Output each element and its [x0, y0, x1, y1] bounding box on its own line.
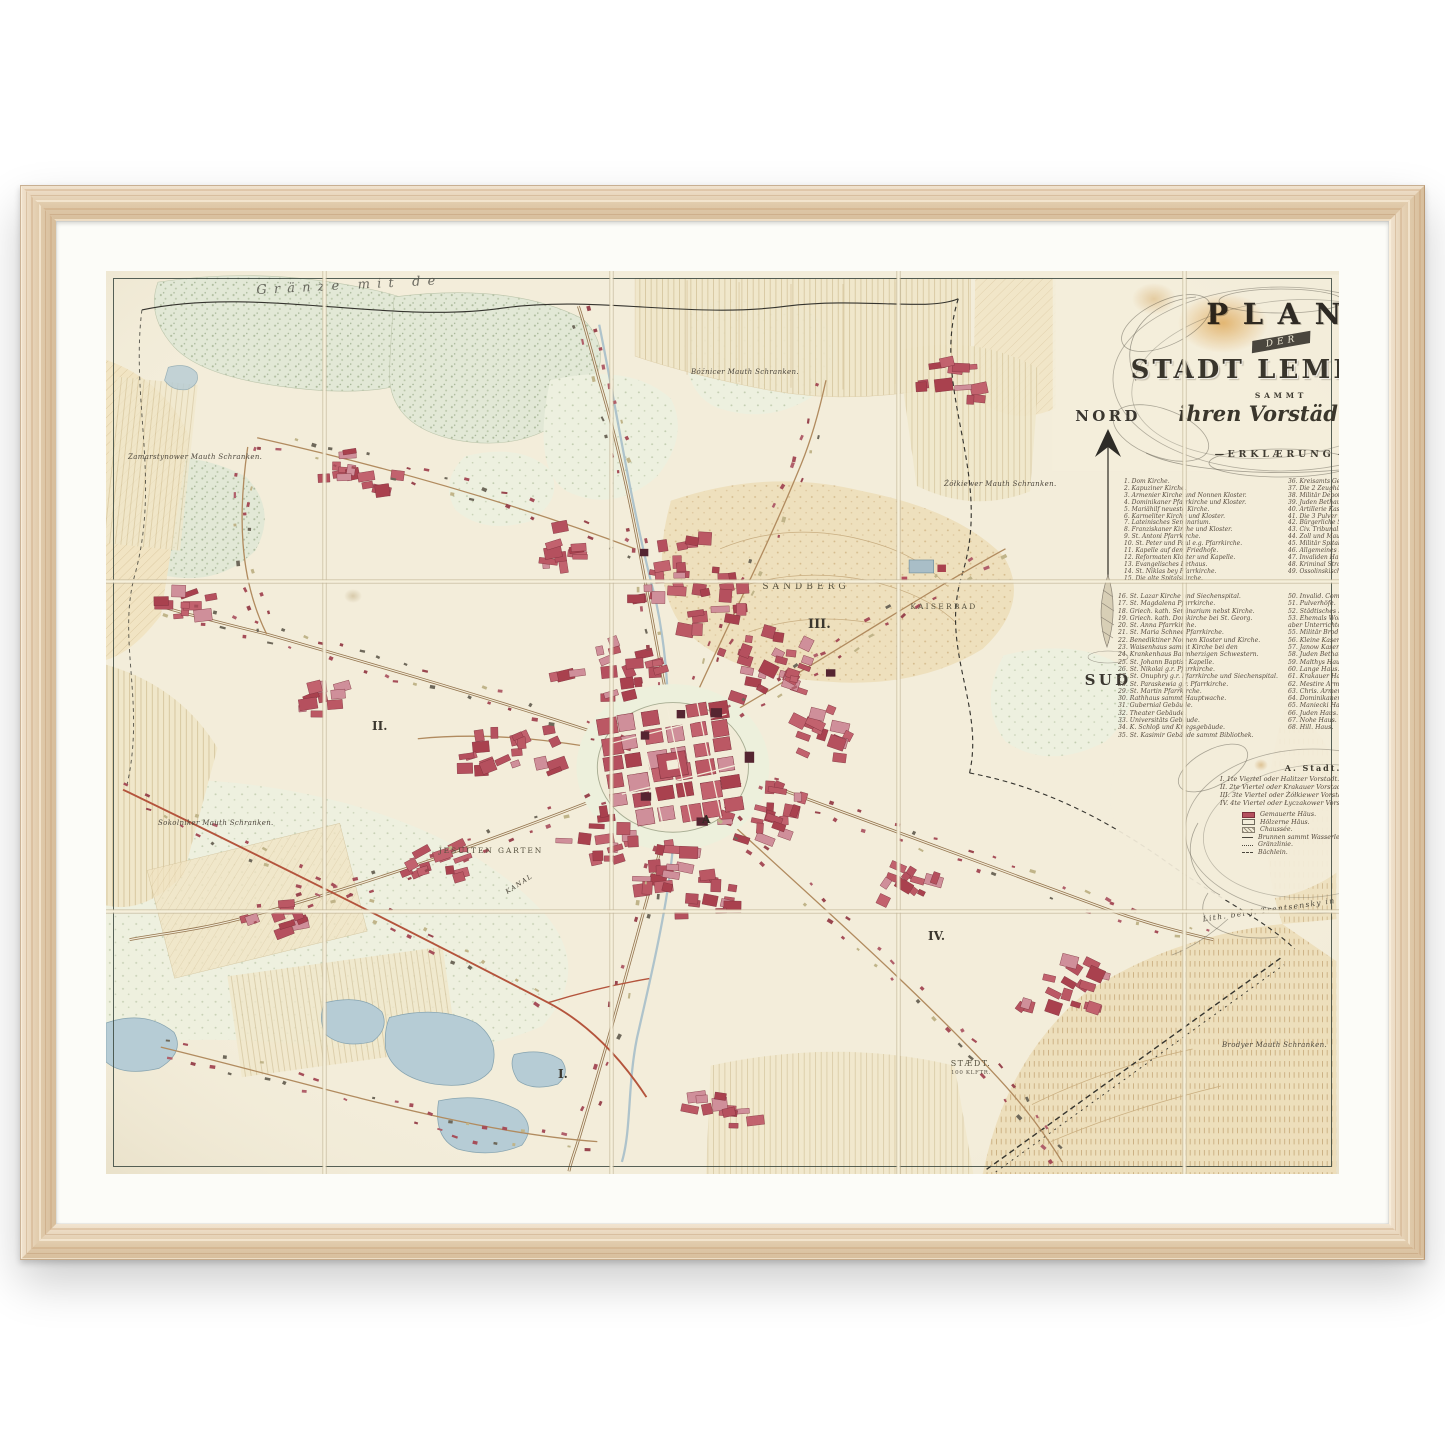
symbol-label: Chaussée.: [1260, 826, 1293, 834]
list-item: 18. Griech. kath. Seminarium nebst Kirch…: [1118, 608, 1278, 615]
list-item: 59. Malthys Haus.: [1288, 659, 1339, 666]
list-item: 27. St. Onuphry g.r. Pfarrkirche und Sie…: [1118, 673, 1278, 680]
title-cartouche: PLAN DER STADT LEMBERG SAMMT ihren Vorst…: [1106, 281, 1339, 486]
list-item: Hölzerne Häus.: [1242, 819, 1339, 827]
mauth-label: Żółkiewer Mauth Schranken.: [944, 480, 1057, 488]
list-item: Chaussée.: [1242, 826, 1339, 834]
list-item: 53. Ehemals Wolthausischer Garten jetzt …: [1288, 615, 1339, 622]
legend-column-2: 36. Kreisamts Gebäud.37. Die 2 Zeughäuse…: [1288, 479, 1339, 576]
key-cartouche: A. Stadt. I. 1te Viertel oder Halitzer V…: [1168, 723, 1339, 958]
key-city-label: A. Stadt.: [1168, 763, 1339, 773]
district-2-label: II.: [372, 719, 387, 733]
wavyline-swatch-icon: [1242, 845, 1253, 846]
segment-seam: [106, 579, 1339, 584]
list-item: 21. St. Maria Schnee Pfarrkirche.: [1118, 629, 1278, 636]
title-subtitle: ihren Vorstädten.: [1106, 401, 1339, 426]
list-item: 50. Invalid. Commando Gebäude.: [1288, 593, 1339, 600]
mauth-label: Brodyer Mauth Schranken.: [1222, 1041, 1327, 1049]
list-item: 55. Militär Brod Backhaus.: [1288, 629, 1339, 636]
symbol-label: Gränzlinie.: [1258, 841, 1293, 849]
list-item: 66. Juden Haus.: [1288, 710, 1339, 717]
district-1-label: I.: [558, 1067, 568, 1081]
list-item: 65. Maniecki Haus.: [1288, 702, 1339, 709]
solid-swatch-icon: [1242, 812, 1255, 818]
segment-seam: [106, 909, 1339, 914]
list-item: 58. Juden Bethaus.: [1288, 651, 1339, 658]
legend-heading: ERKLÆRUNG: [1106, 449, 1339, 460]
list-item: II. 2te Viertel oder Krakauer Vorstadt.: [1220, 783, 1339, 791]
line-swatch-icon: [1242, 837, 1253, 838]
mauth-label: Sokolniker Mauth Schranken.: [158, 819, 274, 827]
list-item: I. 1te Viertel oder Halitzer Vorstadt.: [1220, 775, 1339, 783]
list-item: 63. Chris. Armenier Haus.: [1288, 688, 1339, 695]
frame-bottom: [20, 1224, 1425, 1260]
city-a-label: A: [702, 813, 711, 826]
list-item: 30. Rathhaus sammt Hauptwache.: [1118, 695, 1278, 702]
kaiserbad-label: KAISERBAD: [894, 602, 994, 611]
hatch-swatch-icon: [1242, 827, 1255, 833]
list-item: Bächlein.: [1242, 849, 1339, 857]
list-item: 20. St. Anna Pfarrkirche.: [1118, 622, 1278, 629]
segment-seam: [322, 271, 327, 1174]
symbol-label: Gemauerte Häus.: [1260, 811, 1316, 819]
frame-right: [1389, 185, 1425, 1260]
dashline-swatch-icon: [1242, 852, 1253, 853]
list-item: Brunnen sammt Wasserleitung.: [1242, 834, 1339, 842]
legend-column-4: 50. Invalid. Commando Gebäude.51. Pulver…: [1288, 593, 1339, 732]
segment-seam: [609, 271, 614, 1174]
list-item: 19. Griech. kath. Domkirche bei St. Geor…: [1118, 615, 1278, 622]
district-4-label: IV.: [928, 929, 945, 943]
staedt-scale-label: 100 KLFTR.: [934, 1070, 1008, 1076]
segment-seam: [896, 271, 901, 1174]
frame-left: [20, 185, 56, 1260]
list-item: Gemauerte Häus.: [1242, 811, 1339, 819]
district-3-label: III.: [808, 617, 831, 632]
symbol-label: Brunnen sammt Wasserleitung.: [1258, 834, 1339, 842]
list-item: Gränzlinie.: [1242, 841, 1339, 849]
list-item: 22. Benediktiner Nonnen Kloster und Kirc…: [1118, 637, 1278, 644]
legend-column-3: 16. St. Lazar Kirche und Siechenspital.1…: [1118, 593, 1278, 739]
list-item: 29. St. Martin Pfarrkirche.: [1118, 688, 1278, 695]
list-item: 24. Krankenhaus Barmherzigen Schwestern.: [1118, 651, 1278, 658]
list-item: 61. Krakauer Haus.: [1288, 673, 1339, 680]
frame-top: [20, 185, 1425, 221]
key-symbols-list: Gemauerte Häus.Hölzerne Häus.Chaussée.Br…: [1242, 811, 1339, 857]
list-item: IV. 4te Viertel oder Łyczakower Vorstadt…: [1220, 799, 1339, 807]
title-sammt: SAMMT: [1106, 391, 1339, 400]
mauth-label: Zamarstynower Mauth Schranken.: [128, 453, 262, 461]
list-item: 62. Mestire Armenier Haus.: [1288, 681, 1339, 688]
list-item: 60. Lange Haus.: [1288, 666, 1339, 673]
title-plan: PLAN: [1106, 297, 1339, 331]
list-item: 64. Dominikaner Haus.: [1288, 695, 1339, 702]
list-item: 49. Ossolinskisches National Museum samt…: [1288, 569, 1339, 576]
segment-seam: [1182, 271, 1187, 1174]
list-item: 28. St. Paraskewia g.r. Pfarrkirche.: [1118, 681, 1278, 688]
list-item: 56. Kleine Kasernen.: [1288, 637, 1339, 644]
list-item: 26. St. Nikolai g.r. Pfarrkirche.: [1118, 666, 1278, 673]
list-item: 32. Theater Gebäude.: [1118, 710, 1278, 717]
list-item: 52. Städtisches Krankenhaus und Begräbni…: [1288, 608, 1339, 615]
list-item: 25. St. Johann Baptist Kapelle.: [1118, 659, 1278, 666]
key-quarters-list: I. 1te Viertel oder Halitzer Vorstadt.II…: [1220, 775, 1339, 807]
list-item: III. 3te Viertel oder Żółkiewer Vorstadt…: [1220, 791, 1339, 799]
title-main: STADT LEMBERG: [1106, 355, 1339, 385]
symbol-label: Bächlein.: [1258, 849, 1288, 857]
mat-board: Gränze mit de SANDBERG KAISERBAD III. II…: [56, 221, 1389, 1224]
list-item: aber Unterrichte der Landwirthschaft bes…: [1288, 622, 1339, 629]
list-item: 31. Gubernial Gebäude.: [1118, 702, 1278, 709]
mauth-label: Bóźnicer Mauth Schranken.: [691, 368, 799, 376]
framed-map: Gränze mit de SANDBERG KAISERBAD III. II…: [20, 185, 1425, 1260]
jesuiten-garten-label: JESUITEN GARTEN: [424, 846, 558, 855]
framed-map-photo: { "title": { "plan": "PLAN", "der": "DER…: [0, 0, 1445, 1445]
outline-swatch-icon: [1242, 819, 1255, 825]
staedt-label: STÆDT.: [934, 1059, 1008, 1068]
list-item: 57. Janow Kasernen.: [1288, 644, 1339, 651]
list-item: 16. St. Lazar Kirche und Siechenspital.: [1118, 593, 1278, 600]
list-item: 23. Waisenhaus sammt Kirche bei den: [1118, 644, 1278, 651]
symbol-label: Hölzerne Häus.: [1260, 819, 1310, 827]
map-sheet: Gränze mit de SANDBERG KAISERBAD III. II…: [106, 271, 1339, 1174]
list-item: 17. St. Magdalena Pfarrkirche.: [1118, 600, 1278, 607]
list-item: 51. Pulverhöfe.: [1288, 600, 1339, 607]
